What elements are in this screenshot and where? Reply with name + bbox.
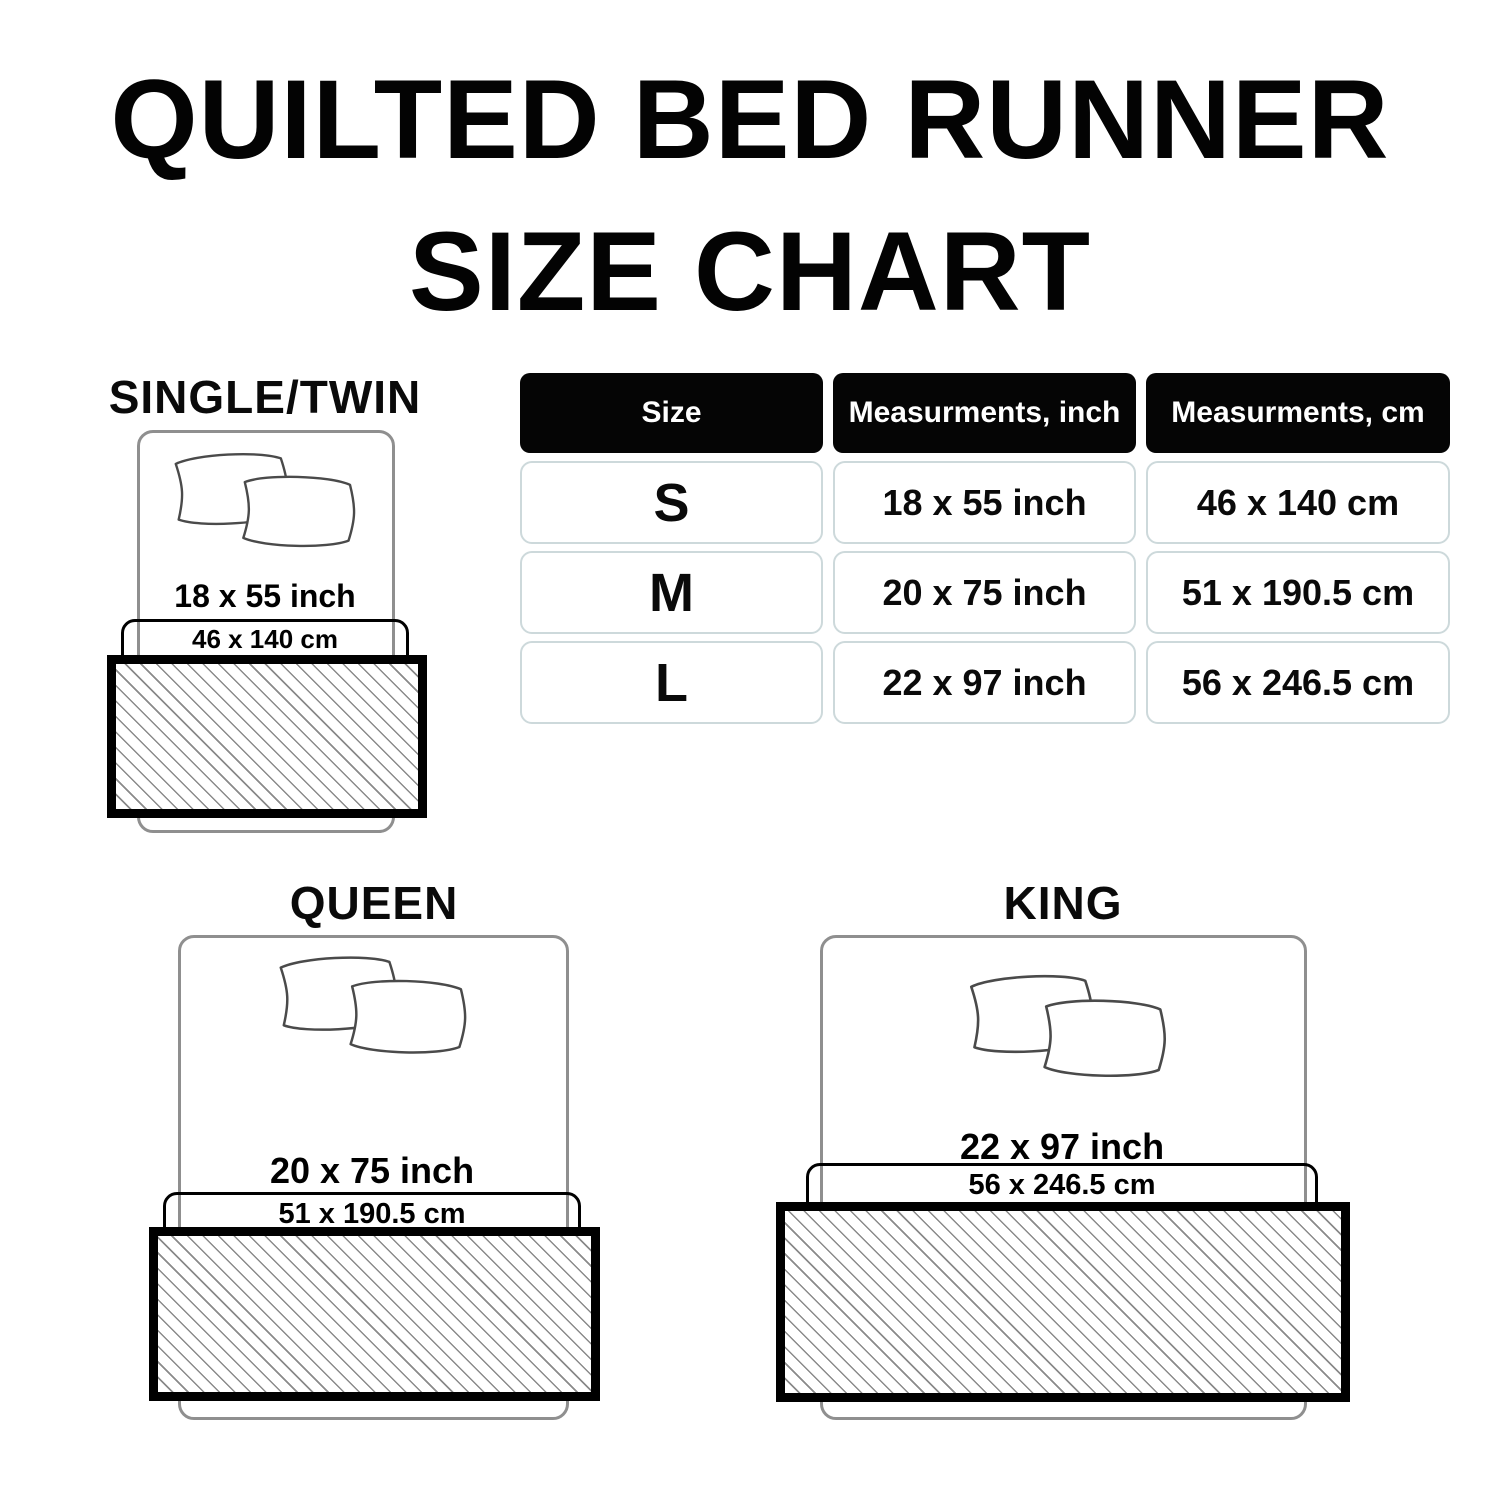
page-title-line2: SIZE CHART [0, 196, 1500, 348]
king-inch-label: 22 x 97 inch [806, 1126, 1318, 1168]
single-twin-label: SINGLE/TWIN [100, 370, 430, 424]
pillow-icon [350, 980, 466, 1054]
single-twin-inch-label: 18 x 55 inch [120, 578, 410, 615]
page-title: QUILTED BED RUNNER SIZE CHART [0, 44, 1500, 348]
table-header-inch: Measurments, inch [833, 373, 1136, 453]
table-cell-cm-l: 56 x 246.5 cm [1146, 641, 1450, 724]
table-cell-inch-s: 18 x 55 inch [833, 461, 1136, 544]
pillow-icon [243, 476, 355, 548]
table-cell-size-s: S [520, 461, 823, 544]
queen-label: QUEEN [174, 876, 574, 930]
table-cell-cm-s: 46 x 140 cm [1146, 461, 1450, 544]
queen-inch-label: 20 x 75 inch [163, 1150, 581, 1192]
queen-runner-swatch [149, 1227, 600, 1401]
table-header-size: Size [520, 373, 823, 453]
table-cell-size-l: L [520, 641, 823, 724]
pillow-pair-icon [258, 945, 486, 1067]
size-chart-infographic: QUILTED BED RUNNER SIZE CHART SINGLE/TWI… [0, 0, 1500, 1500]
page-title-line1: QUILTED BED RUNNER [0, 44, 1500, 196]
table-cell-size-m: M [520, 551, 823, 634]
table-cell-inch-l: 22 x 97 inch [833, 641, 1136, 724]
single-twin-runner-swatch [107, 655, 427, 818]
king-runner-swatch [776, 1202, 1350, 1402]
table-cell-cm-m: 51 x 190.5 cm [1146, 551, 1450, 634]
pillow-pair-icon [168, 442, 360, 560]
single-twin-cm-label: 46 x 140 cm [121, 624, 409, 655]
king-label: KING [863, 876, 1263, 930]
pillow-icon [1044, 999, 1165, 1077]
pillow-pair-icon [948, 963, 1186, 1091]
table-header-cm: Measurments, cm [1146, 373, 1450, 453]
table-cell-inch-m: 20 x 75 inch [833, 551, 1136, 634]
king-cm-label: 56 x 246.5 cm [806, 1169, 1318, 1202]
